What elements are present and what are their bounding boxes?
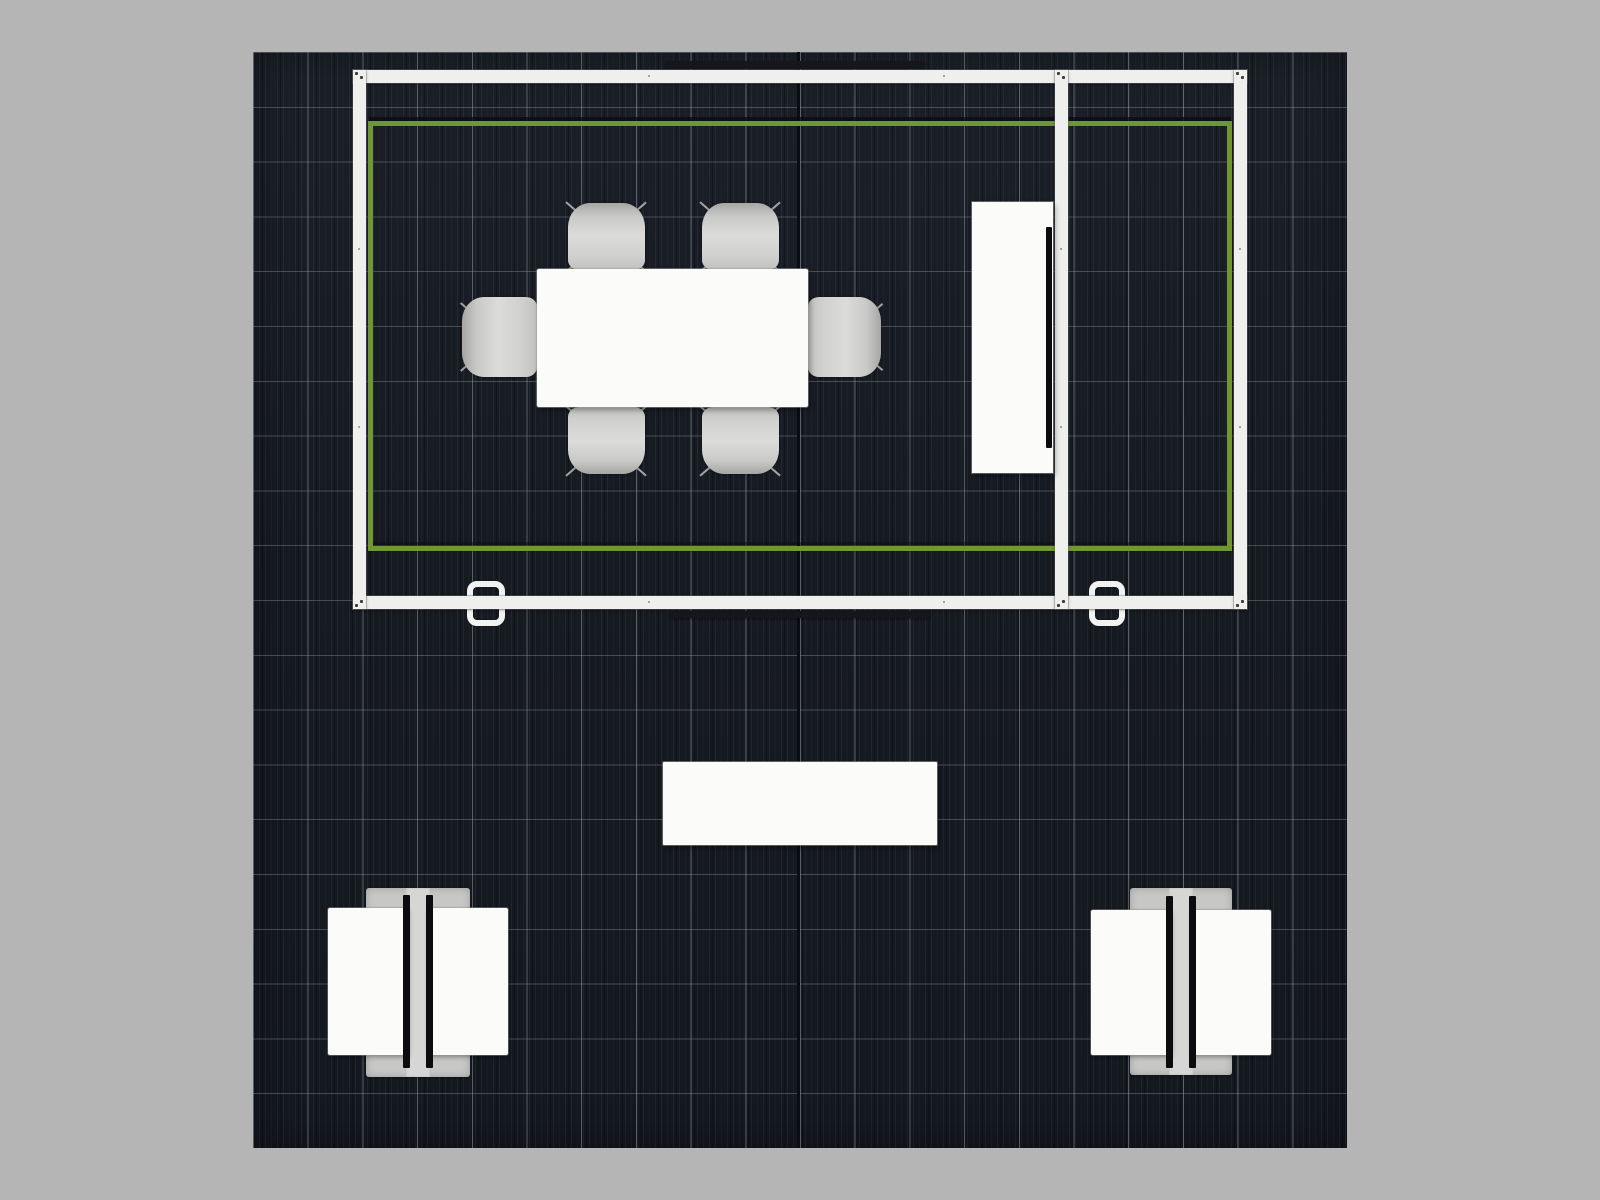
wall-bottom <box>353 596 1247 609</box>
wall-joint-dot <box>358 248 360 250</box>
booth-floorplan <box>0 0 1600 1200</box>
reception-counter <box>663 762 937 845</box>
kiosk-monitor-left <box>403 895 410 1068</box>
kiosk-monitor-right <box>426 895 433 1068</box>
kiosk-monitor-right <box>1189 896 1196 1068</box>
chair-seat <box>808 297 881 377</box>
wall-left <box>353 70 366 609</box>
kiosk-counter-left <box>1091 910 1171 1055</box>
wall-right <box>1234 70 1247 609</box>
wall-joint-dot <box>358 426 360 428</box>
wall-divider <box>1055 70 1068 609</box>
wall-joint-dot <box>648 75 650 77</box>
wall-joint-dot <box>943 75 945 77</box>
monitor-kiosk-left <box>308 886 528 1079</box>
media-cabinet <box>972 202 1053 473</box>
wall-connector-dot <box>1236 604 1239 607</box>
chair-seat <box>568 407 645 474</box>
wall-connector-dot <box>1236 72 1239 75</box>
wall-connector-dot <box>1241 600 1244 603</box>
sign-top <box>665 61 925 69</box>
wall-connector-dot <box>1241 76 1244 79</box>
monitor-kiosk-right <box>1071 886 1291 1077</box>
chair-left <box>462 297 537 377</box>
wall-top <box>353 70 1247 83</box>
wall-joint-dot <box>943 601 945 603</box>
kiosk-counter-left <box>328 908 408 1055</box>
wall-joint-dot <box>1239 248 1241 250</box>
wall-connector-dot <box>1062 76 1065 79</box>
wall-joint-dot <box>648 601 650 603</box>
chair-right <box>808 297 881 377</box>
wall-joint-dot <box>1060 248 1062 250</box>
wall-joint-dot <box>1060 426 1062 428</box>
chair-top-left <box>568 203 645 270</box>
wall-connector-dot <box>360 76 363 79</box>
chair-seat <box>568 203 645 270</box>
chair-top-right <box>702 203 779 270</box>
wall-connector-dot <box>355 604 358 607</box>
tv-screen <box>1046 227 1052 448</box>
wall-joint-dot <box>1239 426 1241 428</box>
wall-connector-dot <box>355 72 358 75</box>
wall-connector-dot <box>1057 604 1060 607</box>
chair-seat <box>702 407 779 474</box>
wall-connector-dot <box>1057 72 1060 75</box>
chair-bottom-right <box>702 407 779 474</box>
chair-seat <box>702 203 779 270</box>
chair-bottom-left <box>568 407 645 474</box>
chair-seat <box>462 297 537 377</box>
wall-connector-dot <box>360 600 363 603</box>
sign-bottom <box>670 611 930 618</box>
wall-connector-dot <box>1062 600 1065 603</box>
kiosk-counter-right <box>428 908 508 1055</box>
conference-table <box>537 269 808 407</box>
kiosk-counter-right <box>1191 910 1271 1055</box>
kiosk-monitor-left <box>1166 896 1173 1068</box>
